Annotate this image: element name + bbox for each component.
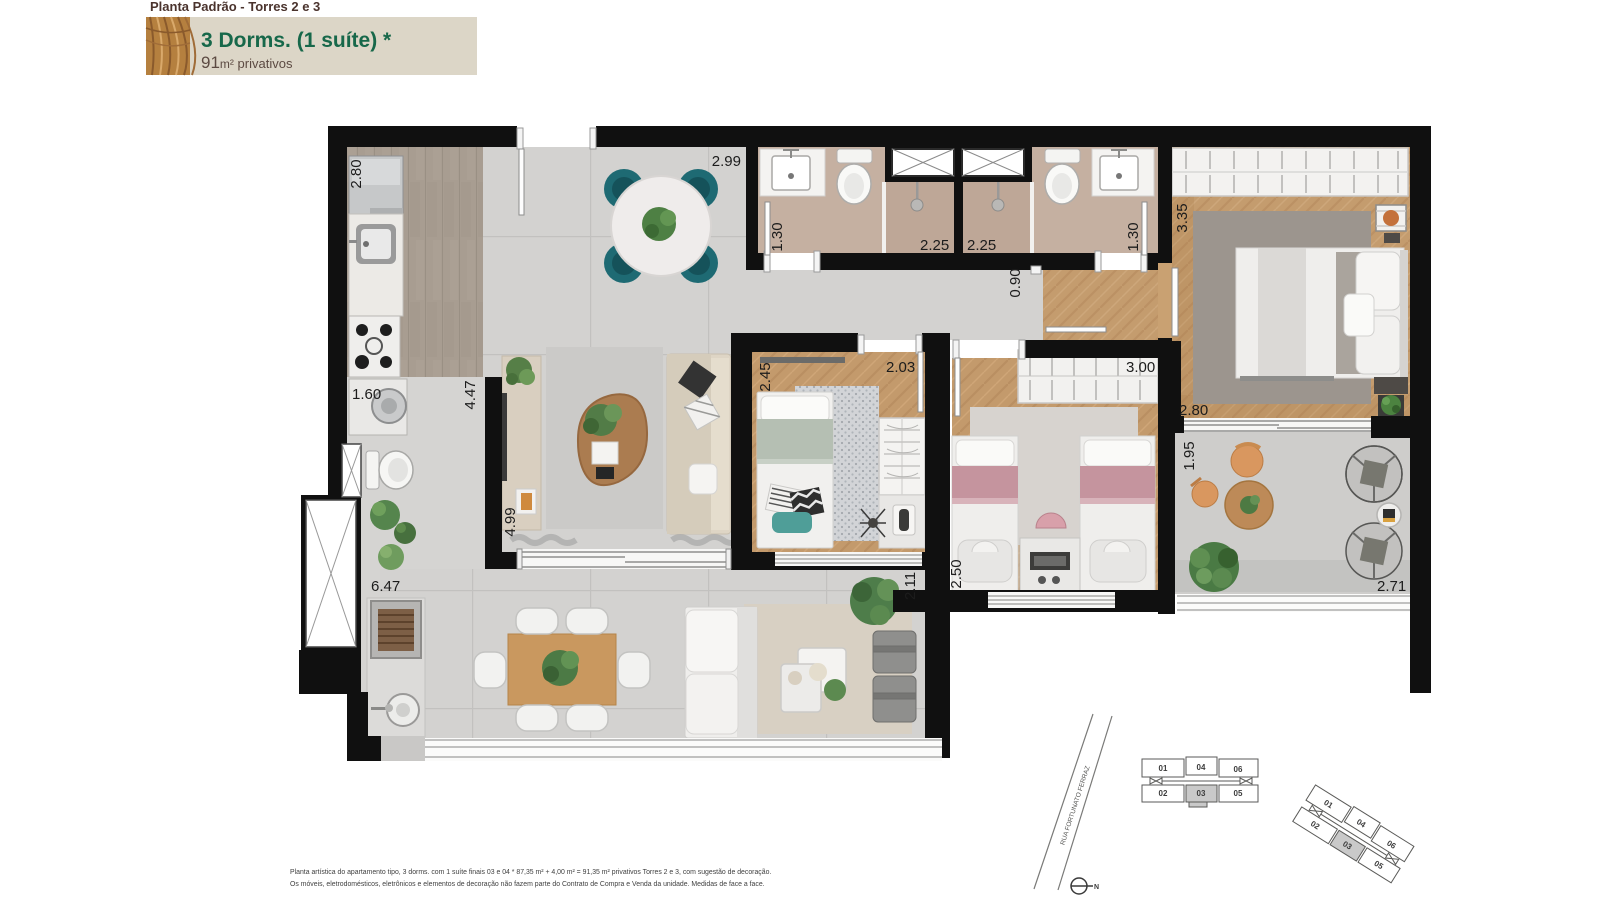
svg-text:3.35: 3.35 [1174, 203, 1191, 232]
svg-text:2.25: 2.25 [967, 237, 996, 254]
svg-text:N: N [1094, 884, 1099, 891]
svg-text:2.03: 2.03 [886, 359, 915, 376]
svg-text:2.99: 2.99 [712, 153, 741, 170]
svg-text:06: 06 [1234, 765, 1243, 774]
svg-text:04: 04 [1197, 763, 1206, 772]
svg-text:05: 05 [1234, 789, 1243, 798]
svg-text:4.99: 4.99 [502, 507, 519, 536]
svg-text:Planta Padrão - Torres 2 e 3: Planta Padrão - Torres 2 e 3 [150, 0, 320, 14]
svg-text:2.11: 2.11 [902, 572, 919, 600]
svg-text:3 Dorms. (1 suíte) *: 3 Dorms. (1 suíte) * [201, 29, 392, 52]
svg-text:6.47: 6.47 [371, 578, 400, 595]
svg-text:Planta artística do apartament: Planta artística do apartamento tipo, 3 … [290, 869, 771, 876]
svg-text:02: 02 [1159, 789, 1168, 798]
svg-text:03: 03 [1197, 789, 1206, 798]
svg-text:91m² privativos: 91m² privativos [201, 53, 293, 72]
svg-text:2.25: 2.25 [920, 237, 949, 254]
svg-text:1.30: 1.30 [769, 222, 786, 251]
svg-text:2.80: 2.80 [1179, 402, 1208, 419]
svg-text:0.90: 0.90 [1007, 268, 1024, 297]
svg-text:2.50: 2.50 [948, 559, 965, 588]
svg-text:4.47: 4.47 [462, 380, 479, 409]
svg-text:2.71: 2.71 [1377, 578, 1406, 595]
svg-text:1.30: 1.30 [1125, 222, 1142, 251]
svg-text:01: 01 [1159, 764, 1168, 773]
svg-text:2.80: 2.80 [348, 159, 365, 188]
svg-text:2.45: 2.45 [757, 362, 774, 391]
svg-text:3.00: 3.00 [1126, 359, 1155, 376]
svg-text:1.60: 1.60 [352, 386, 381, 403]
svg-text:Os móveis, eletrodomésticos, e: Os móveis, eletrodomésticos, eletrônicos… [290, 881, 765, 888]
svg-text:1.95: 1.95 [1181, 441, 1198, 470]
